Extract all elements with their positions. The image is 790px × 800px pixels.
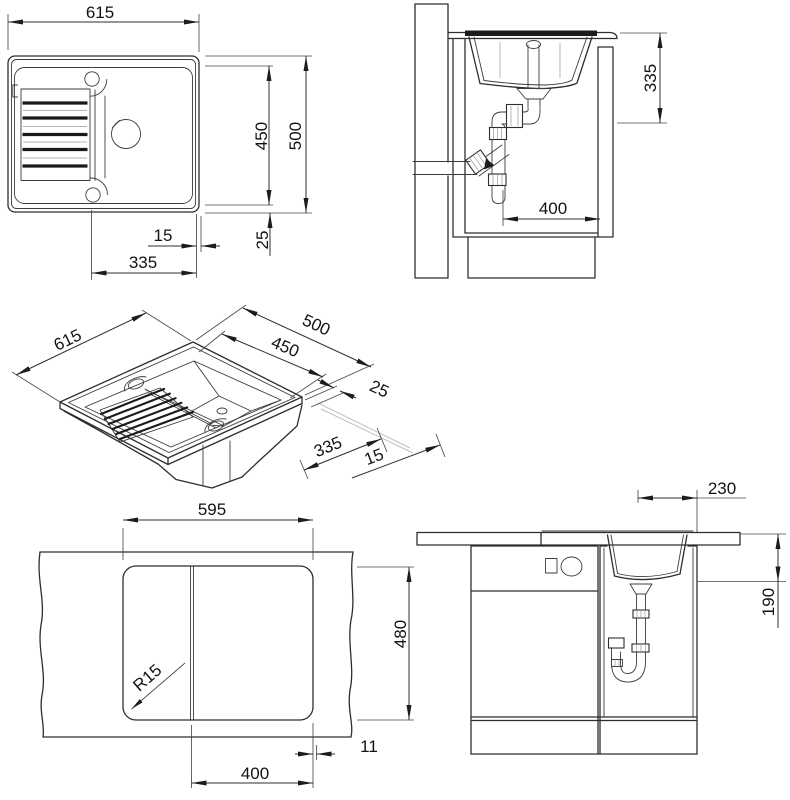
dim-label-cutout-offset: 400 — [241, 764, 269, 783]
cutout-outline — [123, 566, 313, 720]
isometric-view: 615 500 450 25 335 15 — [12, 305, 445, 488]
opening — [85, 361, 281, 447]
dim-label-clearance: 400 — [539, 199, 567, 218]
dim-label-width: 615 — [86, 3, 114, 22]
drain-trap — [413, 89, 551, 204]
front-countertop — [417, 531, 740, 545]
dim-label-cutout-width: 595 — [198, 500, 226, 519]
trap-cap — [609, 638, 625, 648]
dim-label-iso-inner-depth: 450 — [268, 333, 302, 362]
iso-dimensions: 615 500 450 25 335 15 — [12, 305, 445, 479]
drawer-cabinet — [471, 546, 598, 754]
overflow-notch — [13, 85, 18, 97]
plinth-lines — [471, 717, 697, 754]
dim-label-iso-rim: 15 — [362, 445, 386, 470]
rim-outer — [60, 342, 302, 458]
sink-technical-drawing: 615 450 500 25 15 335 — [0, 0, 790, 800]
dim-label-corner-radius: R15 — [129, 660, 165, 695]
plan-dimensions: 615 450 500 25 15 335 — [8, 3, 312, 280]
faucet-hole-bottom — [86, 178, 108, 202]
dim-label-iso-offset: 335 — [311, 433, 344, 461]
plan-view: 615 450 500 25 15 335 — [8, 3, 312, 280]
dim-label-iso-edge: 25 — [367, 376, 392, 401]
handle-square-icon — [546, 559, 558, 574]
front-view: 230 190 — [417, 479, 786, 754]
dim-label-edge: 25 — [253, 231, 272, 250]
dim-label-rim: 15 — [154, 226, 173, 245]
cutout-dimensions: 595 480 R15 11 400 — [123, 500, 414, 788]
drain-hole — [112, 120, 141, 149]
overflow-pipe — [527, 41, 541, 89]
cutout-divider — [191, 567, 194, 720]
dim-label-outer-depth: 500 — [286, 122, 305, 150]
cutout-view: 595 480 R15 11 400 — [39, 500, 414, 788]
drawing-canvas: 615 450 500 25 15 335 — [0, 0, 790, 800]
plinth — [468, 237, 595, 278]
dim-label-bowl-width: 230 — [708, 479, 736, 498]
coupling-1 — [490, 128, 507, 140]
faucet-hole-top — [85, 72, 107, 96]
front-drain-funnel — [630, 584, 652, 594]
dim-label-edge-gap: 11 — [360, 737, 378, 756]
sink-section — [465, 31, 597, 89]
front-bowl — [608, 535, 688, 580]
dim-label-iso-outer-depth: 500 — [299, 310, 333, 339]
iso-sink-body — [60, 342, 413, 488]
countertop-panel — [39, 552, 353, 737]
bowl-inner-wall — [474, 37, 587, 85]
side-section-view: 335 400 — [413, 4, 667, 278]
dim-label-bowl-depth: 190 — [759, 588, 778, 616]
dim-label-inner-depth: 450 — [252, 122, 271, 150]
drain — [217, 408, 227, 414]
iso-drainboard — [100, 388, 193, 442]
handle-circle-icon — [561, 557, 582, 576]
union-nut — [507, 105, 523, 128]
dim-label-drain-height: 335 — [641, 64, 660, 92]
front-dimensions: 230 190 — [638, 479, 786, 628]
sink-rim-band — [465, 31, 597, 37]
dim-label-cutout-height: 480 — [391, 620, 410, 648]
dim-label-iso-width: 615 — [51, 325, 85, 354]
drainboard — [21, 89, 90, 181]
wall — [415, 4, 448, 278]
drain-funnel — [517, 89, 551, 100]
front-trap — [609, 584, 653, 682]
dim-label-offset: 335 — [129, 253, 157, 272]
